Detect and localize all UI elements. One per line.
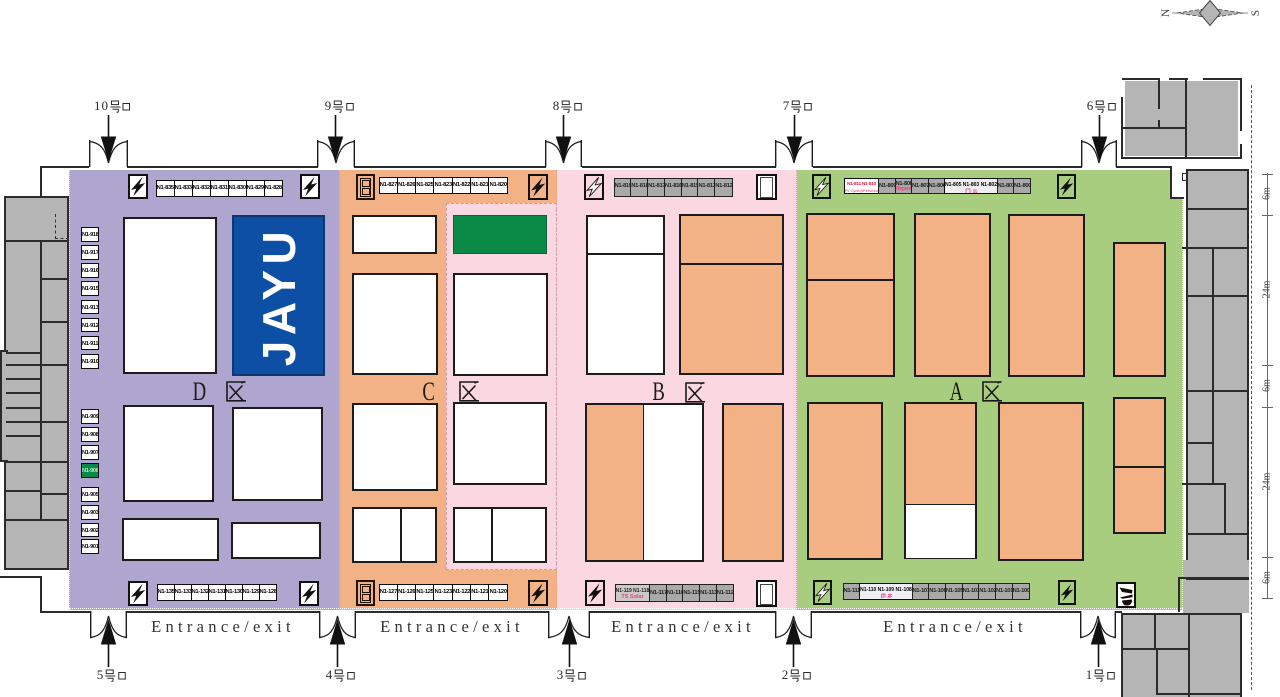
svg-text:S: S — [1250, 10, 1262, 16]
svg-text:N: N — [1160, 8, 1172, 17]
